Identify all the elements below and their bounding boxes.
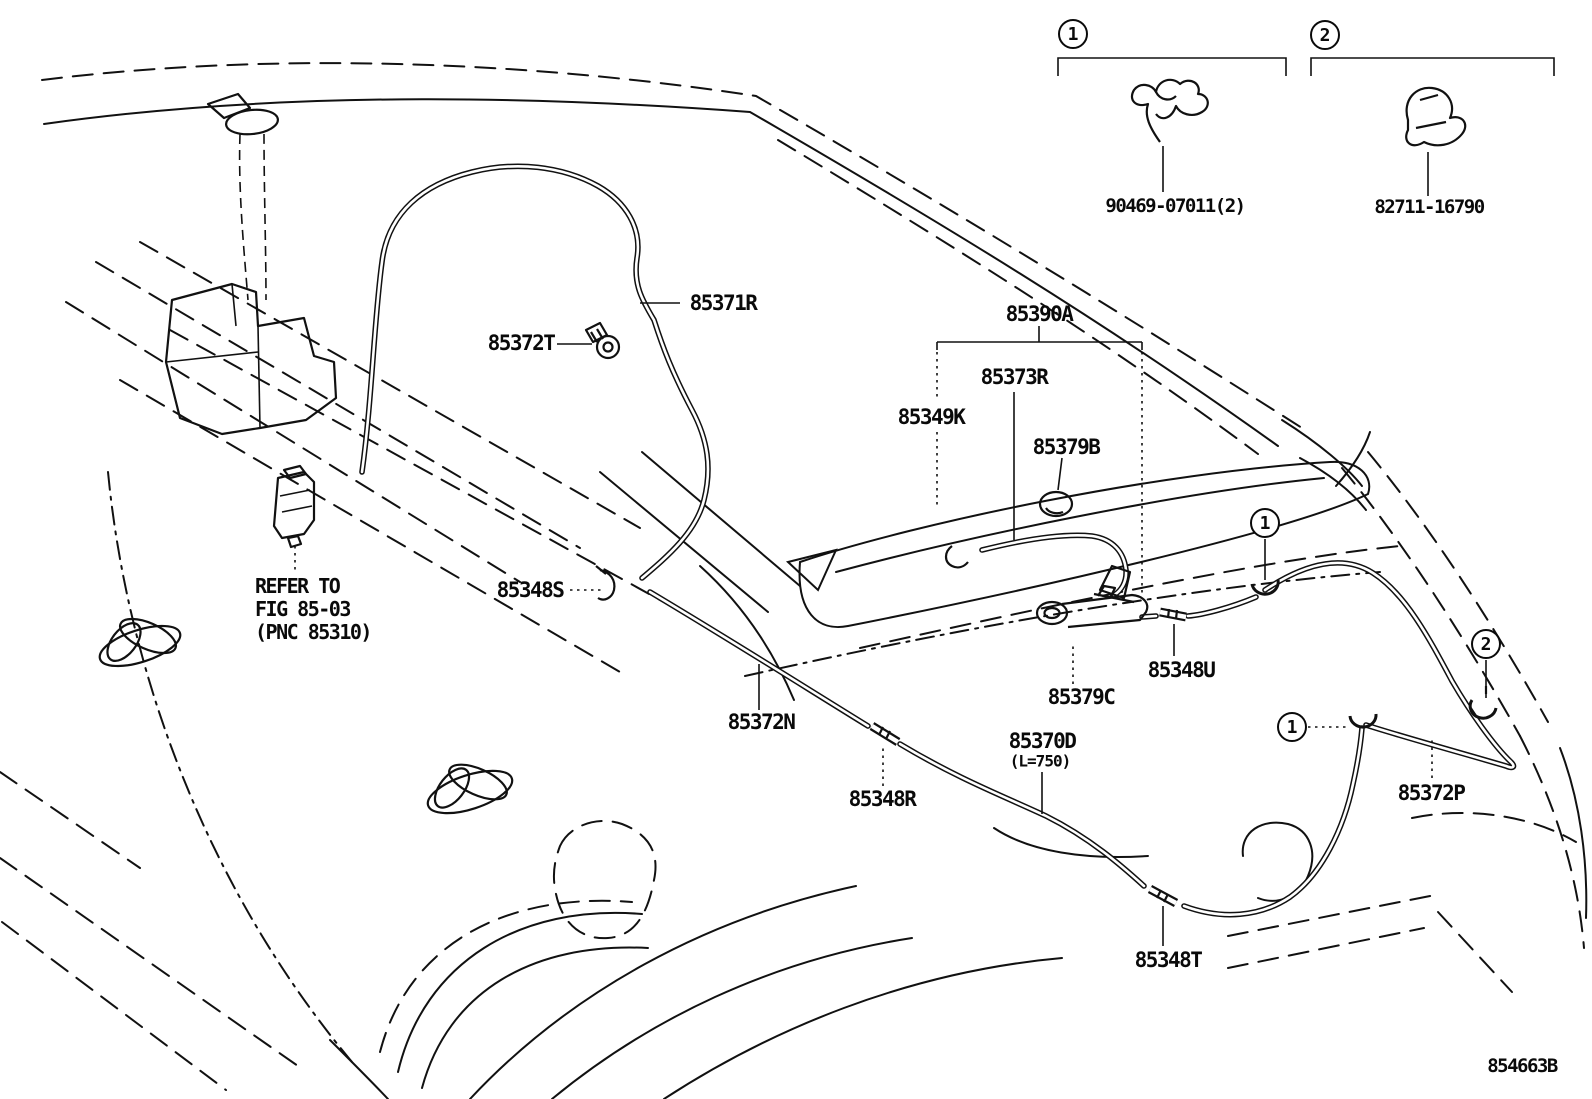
part-label-85370D-length: (L=750) [1010, 752, 1070, 771]
part-label-85373R[interactable]: 85373R [981, 365, 1048, 389]
part-label-85390A[interactable]: 85390A [1006, 302, 1073, 326]
rear-spoiler [700, 462, 1369, 700]
hose-85372P [1142, 563, 1513, 915]
legend-callout-1[interactable]: 1 [1058, 19, 1088, 49]
legend-part-number-82711[interactable]: 82711-16790 [1374, 196, 1483, 218]
callout-2-right[interactable]: 2 [1471, 629, 1501, 659]
part-label-85348T[interactable]: 85348T [1135, 948, 1202, 972]
clip-icon-90469 [1132, 80, 1208, 142]
part-label-85348S[interactable]: 85348S [497, 578, 564, 602]
connector-85348R [872, 726, 898, 742]
part-label-85372P[interactable]: 85372P [1398, 781, 1465, 805]
legend-part-number-90469[interactable]: 90469-07011(2) [1105, 195, 1244, 217]
diagram-canvas [0, 0, 1592, 1099]
grommet-screw-85372T [586, 323, 619, 358]
refer-note-line1: REFER TO [255, 575, 371, 598]
spoiler-hose-elbow [946, 546, 968, 567]
part-label-85372T[interactable]: 85372T [488, 331, 555, 355]
washer-reservoir [166, 94, 336, 434]
door-handle-front [95, 612, 185, 674]
part-label-85379C[interactable]: 85379C [1048, 685, 1115, 709]
joint-85348S [596, 566, 614, 600]
refer-note-line2: FIG 85-03 [255, 598, 371, 621]
grommet-85379B [1040, 492, 1072, 516]
part-label-85349K[interactable]: 85349K [898, 405, 965, 429]
figure-code: 854663B [1487, 1055, 1557, 1077]
leader-lines [295, 303, 1486, 946]
parts-diagram-page: 85371R 85372T 85390A 85373R 85349K 85379… [0, 0, 1592, 1099]
washer-pump [274, 466, 314, 547]
connector-85348U [1160, 609, 1186, 619]
part-label-85370D[interactable]: 85370D [1009, 729, 1076, 753]
clip-small-right [1470, 686, 1496, 718]
car-body-outline [0, 63, 1586, 1099]
door-handle-rear [423, 758, 517, 822]
callout-1-low[interactable]: 1 [1277, 712, 1307, 742]
callout-1-mid[interactable]: 1 [1250, 508, 1280, 538]
connector-85348T [1150, 889, 1176, 903]
part-label-85348R[interactable]: 85348R [849, 787, 916, 811]
part-label-85348U[interactable]: 85348U [1148, 658, 1215, 682]
legend-callout-2[interactable]: 2 [1310, 20, 1340, 50]
part-label-85379B[interactable]: 85379B [1033, 435, 1100, 459]
part-label-85372N[interactable]: 85372N [728, 710, 795, 734]
refer-note-line3: (PNC 85310) [255, 621, 371, 644]
hook-clip-low [1350, 714, 1376, 727]
part-label-85371R[interactable]: 85371R [690, 291, 757, 315]
refer-note[interactable]: REFER TO FIG 85-03 (PNC 85310) [255, 575, 371, 644]
legend-bracket-2 [1311, 58, 1554, 196]
clip-icon-82711 [1406, 88, 1465, 145]
legend-bracket-1 [1058, 58, 1286, 192]
